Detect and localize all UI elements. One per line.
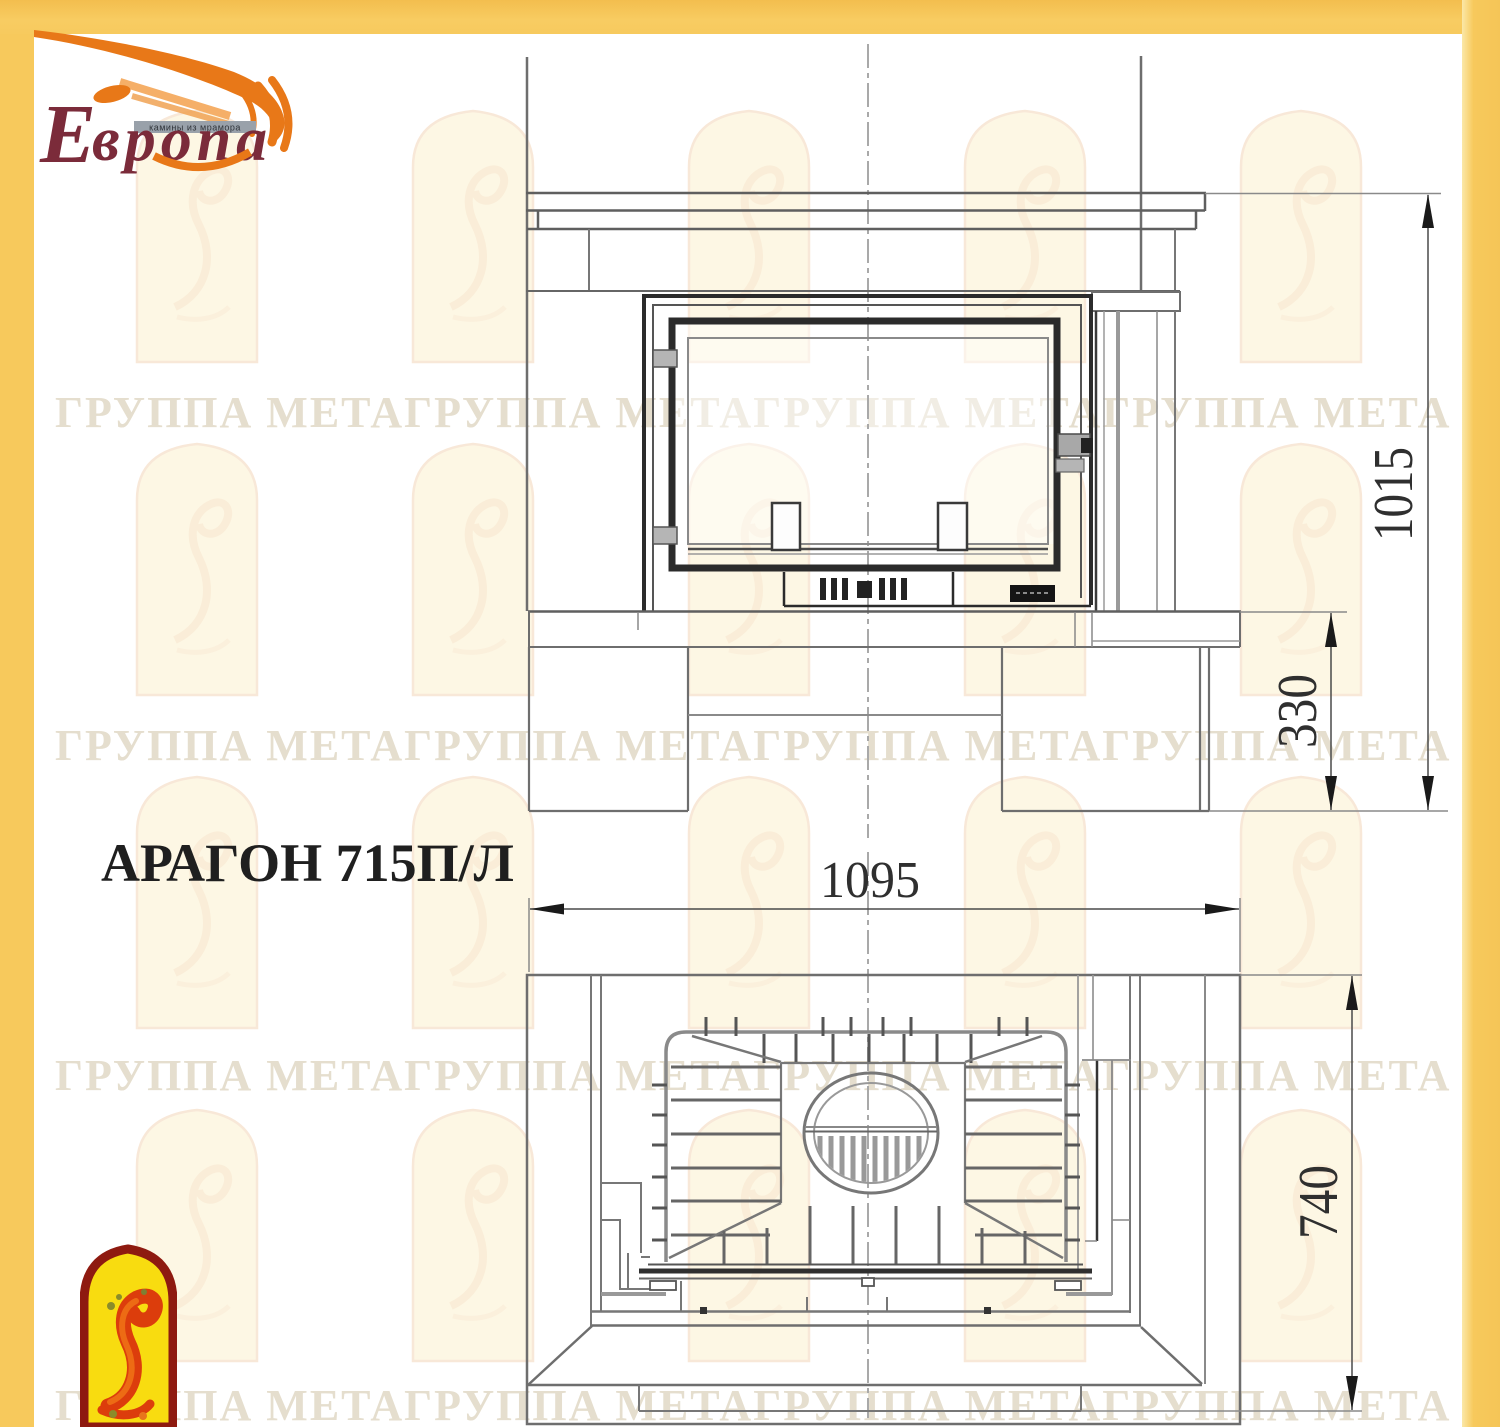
svg-text:1095: 1095 (820, 852, 920, 909)
svg-text:1015: 1015 (1363, 447, 1425, 541)
svg-text:740: 740 (1288, 1165, 1350, 1239)
svg-text:330: 330 (1267, 674, 1329, 748)
svg-text:Е: Е (39, 88, 96, 181)
